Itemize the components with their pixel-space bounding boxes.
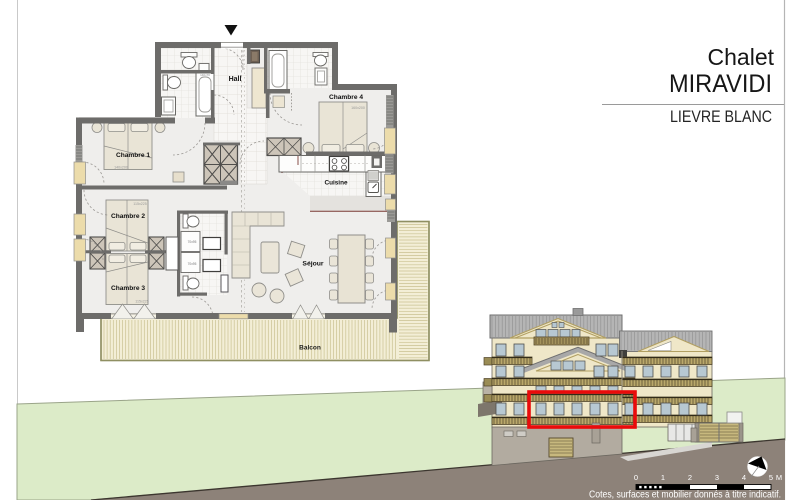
svg-text:Cotes, surfaces et mobilier do: Cotes, surfaces et mobilier donnés à tit… — [589, 489, 781, 500]
svg-text:115x225: 115x225 — [133, 202, 147, 206]
svg-text:Séjour: Séjour — [302, 261, 324, 268]
svg-text:Cuisine: Cuisine — [324, 180, 348, 187]
svg-text:4: 4 — [742, 473, 746, 482]
svg-text:140x70: 140x70 — [200, 73, 210, 77]
svg-text:140x200: 140x200 — [114, 166, 128, 170]
svg-text:Chalet: Chalet — [708, 44, 775, 70]
svg-text:M: M — [776, 473, 782, 482]
svg-text:3: 3 — [715, 473, 719, 482]
svg-text:Chambre 3: Chambre 3 — [111, 285, 145, 292]
svg-text:Hall: Hall — [229, 76, 242, 83]
svg-text:1: 1 — [661, 473, 665, 482]
svg-text:Chambre 2: Chambre 2 — [111, 213, 145, 220]
svg-text:70x95: 70x95 — [188, 262, 197, 266]
svg-text:Balcon: Balcon — [299, 345, 321, 352]
svg-text:160x200: 160x200 — [351, 106, 365, 110]
svg-text:Chambre 4: Chambre 4 — [329, 94, 363, 101]
svg-text:0: 0 — [634, 473, 638, 482]
svg-text:70x95: 70x95 — [188, 240, 197, 244]
svg-text:LIEVRE BLANC: LIEVRE BLANC — [670, 107, 772, 126]
svg-text:2: 2 — [688, 473, 692, 482]
svg-text:Chambre 1: Chambre 1 — [116, 152, 150, 159]
svg-text:MIRAVIDI: MIRAVIDI — [669, 70, 772, 98]
svg-text:5: 5 — [769, 473, 773, 482]
svg-text:115x225: 115x225 — [135, 300, 149, 304]
